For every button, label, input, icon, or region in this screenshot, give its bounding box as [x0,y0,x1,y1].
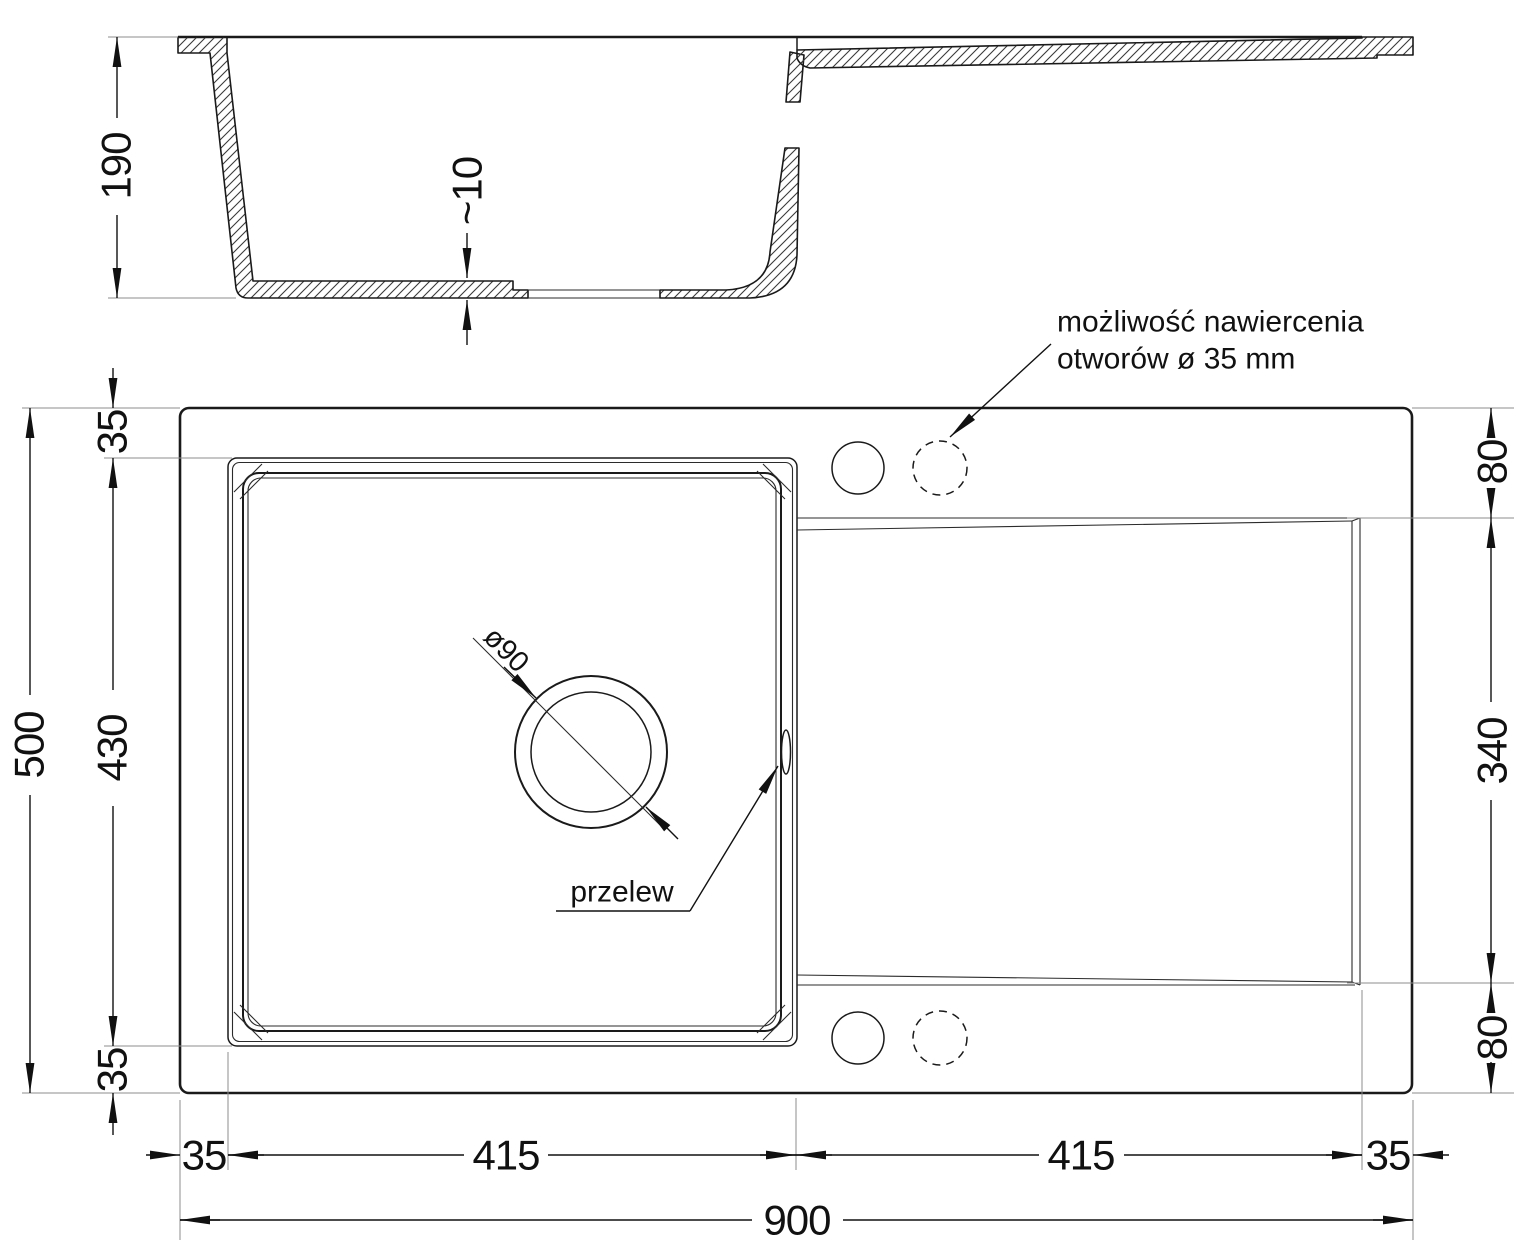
dim-bottom-bowl: 415 [472,1132,539,1179]
drain-outer-circle [515,676,667,828]
overflow-slot [782,730,791,774]
dim-bottom-thickness-10: ~10 [444,157,491,345]
overflow: przelew [556,730,791,911]
dim-side-overall: 500 [6,711,53,778]
dim-side-edge-bottom: 35 [89,1048,136,1093]
dim-side-edge-top: 35 [89,410,136,455]
tap-hole-top [832,442,884,494]
optional-hole-bottom [913,1011,967,1065]
section-drain-recess [528,290,660,298]
tap-holes [832,441,967,1065]
drainer-board [797,518,1360,985]
dim-right-top: 80 [1469,440,1516,485]
tap-hole-bottom [832,1012,884,1064]
dims-right: 80 340 80 [1347,408,1516,1093]
bowl-corner-chamfers [234,464,791,1040]
overflow-label: przelew [570,876,674,909]
drain: ø90 [473,621,678,839]
dim-thickness-label: ~10 [444,157,491,225]
dim-bottom-edge-left: 35 [182,1132,227,1179]
dim-bottom-edge-right: 35 [1366,1132,1411,1179]
plan-view: ø90 przelew możliwość nawiercenia otworó… [6,306,1516,1244]
dim-depth-label: 190 [93,132,140,199]
optional-hole-top [913,441,967,495]
section-right-wall-lower [660,148,799,298]
dim-bottom-drainer: 415 [1047,1132,1114,1179]
dim-right-bottom: 80 [1469,1016,1516,1061]
dims-left: 500 35 430 35 [6,368,233,1135]
drill-annotation: możliwość nawiercenia otworów ø 35 mm [950,306,1364,438]
sink-technical-drawing: 190 ~10 [0,0,1526,1248]
drill-note-line1: możliwość nawiercenia [1057,306,1364,339]
drill-note-line2: otworów ø 35 mm [1057,343,1295,376]
dim-side-bowl: 430 [89,714,136,781]
bowl-rim [228,458,797,1046]
section-drainer-slab [797,37,1413,68]
sink-outline [180,408,1412,1093]
drain-inner-circle [531,692,651,812]
dim-overall-length: 900 [763,1197,830,1244]
drain-diameter-label: ø90 [477,621,535,679]
drawing-canvas: 190 ~10 [0,0,1526,1248]
cross-section-view: 190 ~10 [93,37,1414,345]
dim-right-drainer: 340 [1469,717,1516,784]
